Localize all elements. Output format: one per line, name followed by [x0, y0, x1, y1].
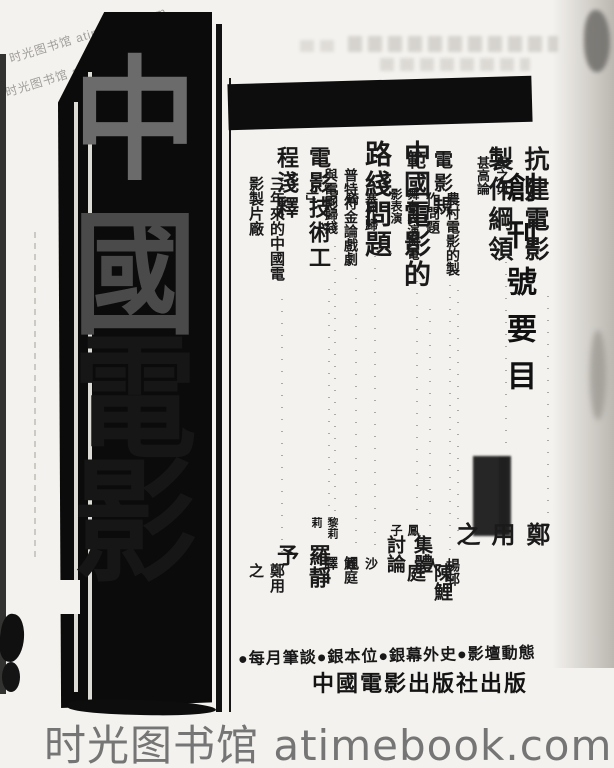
scan-smudge [584, 10, 610, 72]
masthead-char: 電 [58, 333, 212, 467]
scan-edge-line [0, 54, 6, 694]
bleed-through-mark [34, 232, 36, 562]
vertical-rule [216, 24, 222, 712]
watermark-bottom: 时光图书馆 atimebook.com [44, 712, 612, 768]
masthead-char: 影 [58, 457, 212, 591]
toc-entry-title: 抗建電影製作綱領 [448, 146, 553, 287]
bleed-through-text [380, 58, 530, 71]
toc-entry-author: 鄭用之 [245, 563, 287, 594]
toc-leader-dots: ································ [245, 294, 287, 559]
bleed-through-text [348, 36, 558, 52]
toc-entry: 三年來的中國電影製片廠 ····························… [245, 176, 287, 594]
magazine-cover-scan: 时光图书馆 atimebook.com 时光图书馆 atimebook.com … [0, 0, 614, 768]
toc-leader-dots: ································ [448, 291, 553, 517]
bleed-through-text [300, 40, 340, 52]
vertical-rule [229, 78, 231, 712]
scan-white-notch [52, 580, 80, 614]
toc-entry: 抗建電影製作綱領 ·······························… [448, 146, 553, 564]
toc-entry-title: 三年來的中國電影製片廠 [245, 176, 287, 290]
scan-gutter-shadow [552, 0, 614, 668]
scan-smudge [0, 613, 27, 664]
top-black-bar [227, 76, 532, 130]
scan-smudge [590, 330, 606, 420]
masthead-char: 國 [58, 209, 212, 343]
toc-entry-author: 鄭用之 [448, 522, 553, 564]
publisher-line: 中國電影出版社出版 [312, 666, 528, 698]
masthead-char: 中 [58, 55, 212, 189]
masthead-title-block: 中 國 電 影 [58, 12, 212, 708]
features-banner: ●每月筆談●銀本位●銀幕外史●影壇動態 [238, 639, 538, 669]
scan-smudge [2, 662, 20, 692]
